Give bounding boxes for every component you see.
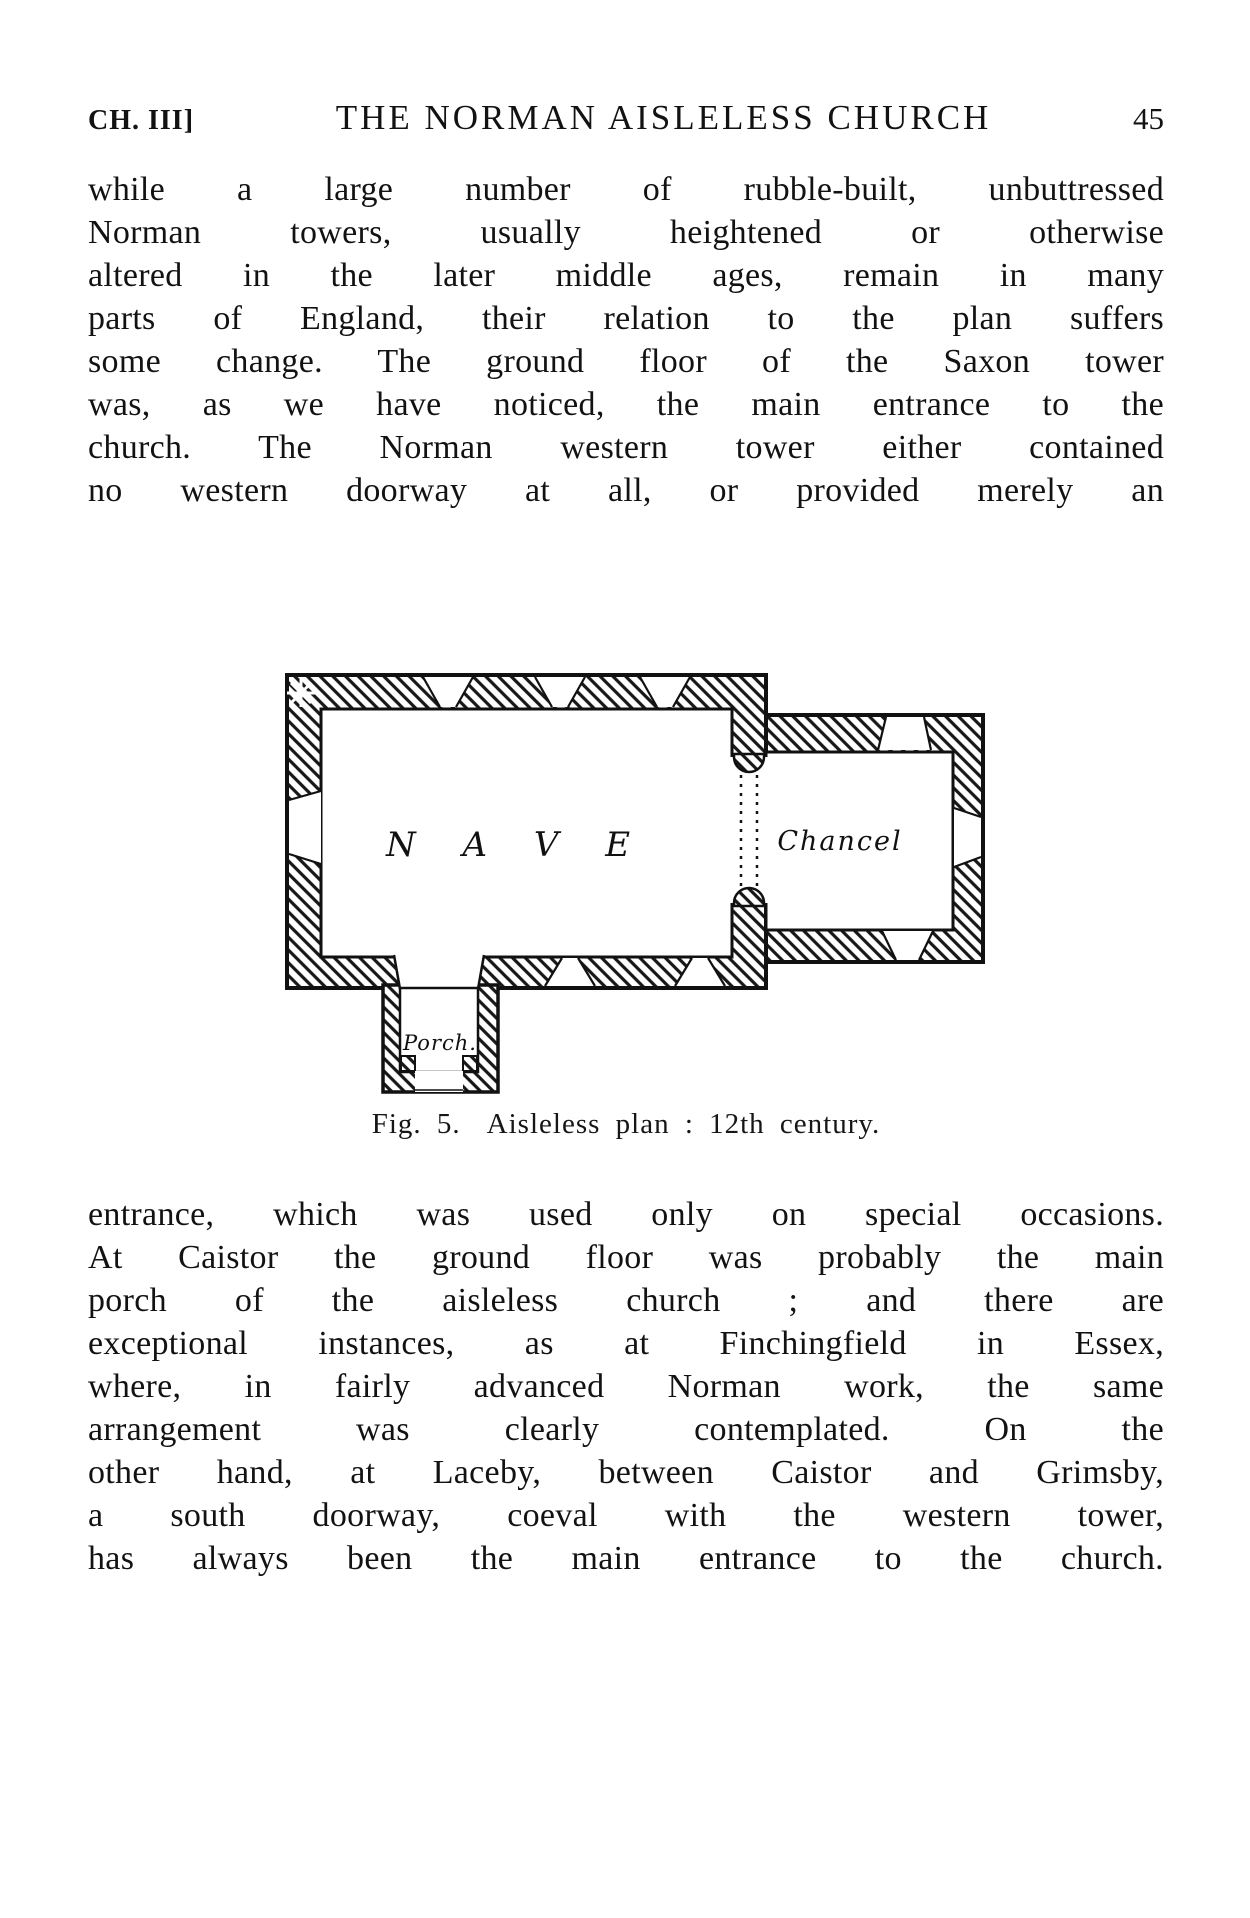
text-line: porch of the aisleless church ; and ther…	[88, 1279, 1164, 1322]
porch-label: Porch.	[402, 1031, 477, 1055]
text-line: no western doorway at all, or provided m…	[88, 469, 1164, 512]
window	[878, 717, 931, 750]
text-line: a south doorway, coeval with the western…	[88, 1494, 1164, 1537]
text-line: altered in the later middle ages, remain…	[88, 254, 1164, 297]
paragraph-1: while a large number of rubble-built, un…	[88, 168, 1164, 512]
arch-respond-south	[734, 888, 764, 906]
nave-label: N A V E	[385, 825, 648, 865]
text-line: while a large number of rubble-built, un…	[88, 168, 1164, 211]
text-line: exceptional instances, as at Finchingfie…	[88, 1322, 1164, 1365]
text-line: other hand, at Laceby, between Caistor a…	[88, 1451, 1164, 1494]
figure-number: Fig. 5.	[372, 1108, 461, 1140]
text-line: has always been the main entrance to the…	[88, 1537, 1164, 1580]
chancel-arch-opening	[730, 757, 768, 903]
church-plan-figure: N A V E Chancel Porch.	[260, 660, 1000, 1100]
figure-caption: Fig. 5.Aisleless plan : 12th century.	[88, 1108, 1164, 1141]
text-line: some change. The ground floor of the Sax…	[88, 340, 1164, 383]
page-number: 45	[1133, 101, 1164, 137]
text-line: entrance, which was used only on special…	[88, 1193, 1164, 1236]
porch-corner-block	[463, 1056, 477, 1071]
text-line: parts of England, their relation to the …	[88, 297, 1164, 340]
aisleless-plan-drawing: N A V E Chancel Porch.	[260, 660, 1000, 1100]
porch-doorway	[394, 955, 484, 989]
arch-respond-north	[734, 754, 764, 772]
corner-cross-mark	[287, 679, 315, 707]
page-title: THE NORMAN AISLELESS CHURCH	[336, 98, 992, 138]
figure-caption-text: Aisleless plan : 12th century.	[487, 1108, 881, 1140]
text-line: At Caistor the ground floor was probably…	[88, 1236, 1164, 1279]
chancel-label: Chancel	[777, 826, 902, 857]
text-line: Norman towers, usually heightened or oth…	[88, 211, 1164, 254]
text-line: arrangement was clearly contemplated. On…	[88, 1408, 1164, 1451]
text-line: where, in fairly advanced Norman work, t…	[88, 1365, 1164, 1408]
window	[289, 791, 321, 864]
text-line: was, as we have noticed, the main entran…	[88, 383, 1164, 426]
paragraph-2: entrance, which was used only on special…	[88, 1193, 1164, 1580]
porch-entrance	[415, 1071, 463, 1092]
chapter-reference: CH. III]	[88, 105, 194, 137]
book-page: CH. III] THE NORMAN AISLELESS CHURCH 45 …	[0, 0, 1250, 1918]
text-line: church. The Norman western tower either …	[88, 426, 1164, 469]
porch-corner-block	[401, 1056, 415, 1071]
page-header: CH. III] THE NORMAN AISLELESS CHURCH 45	[88, 98, 1164, 138]
